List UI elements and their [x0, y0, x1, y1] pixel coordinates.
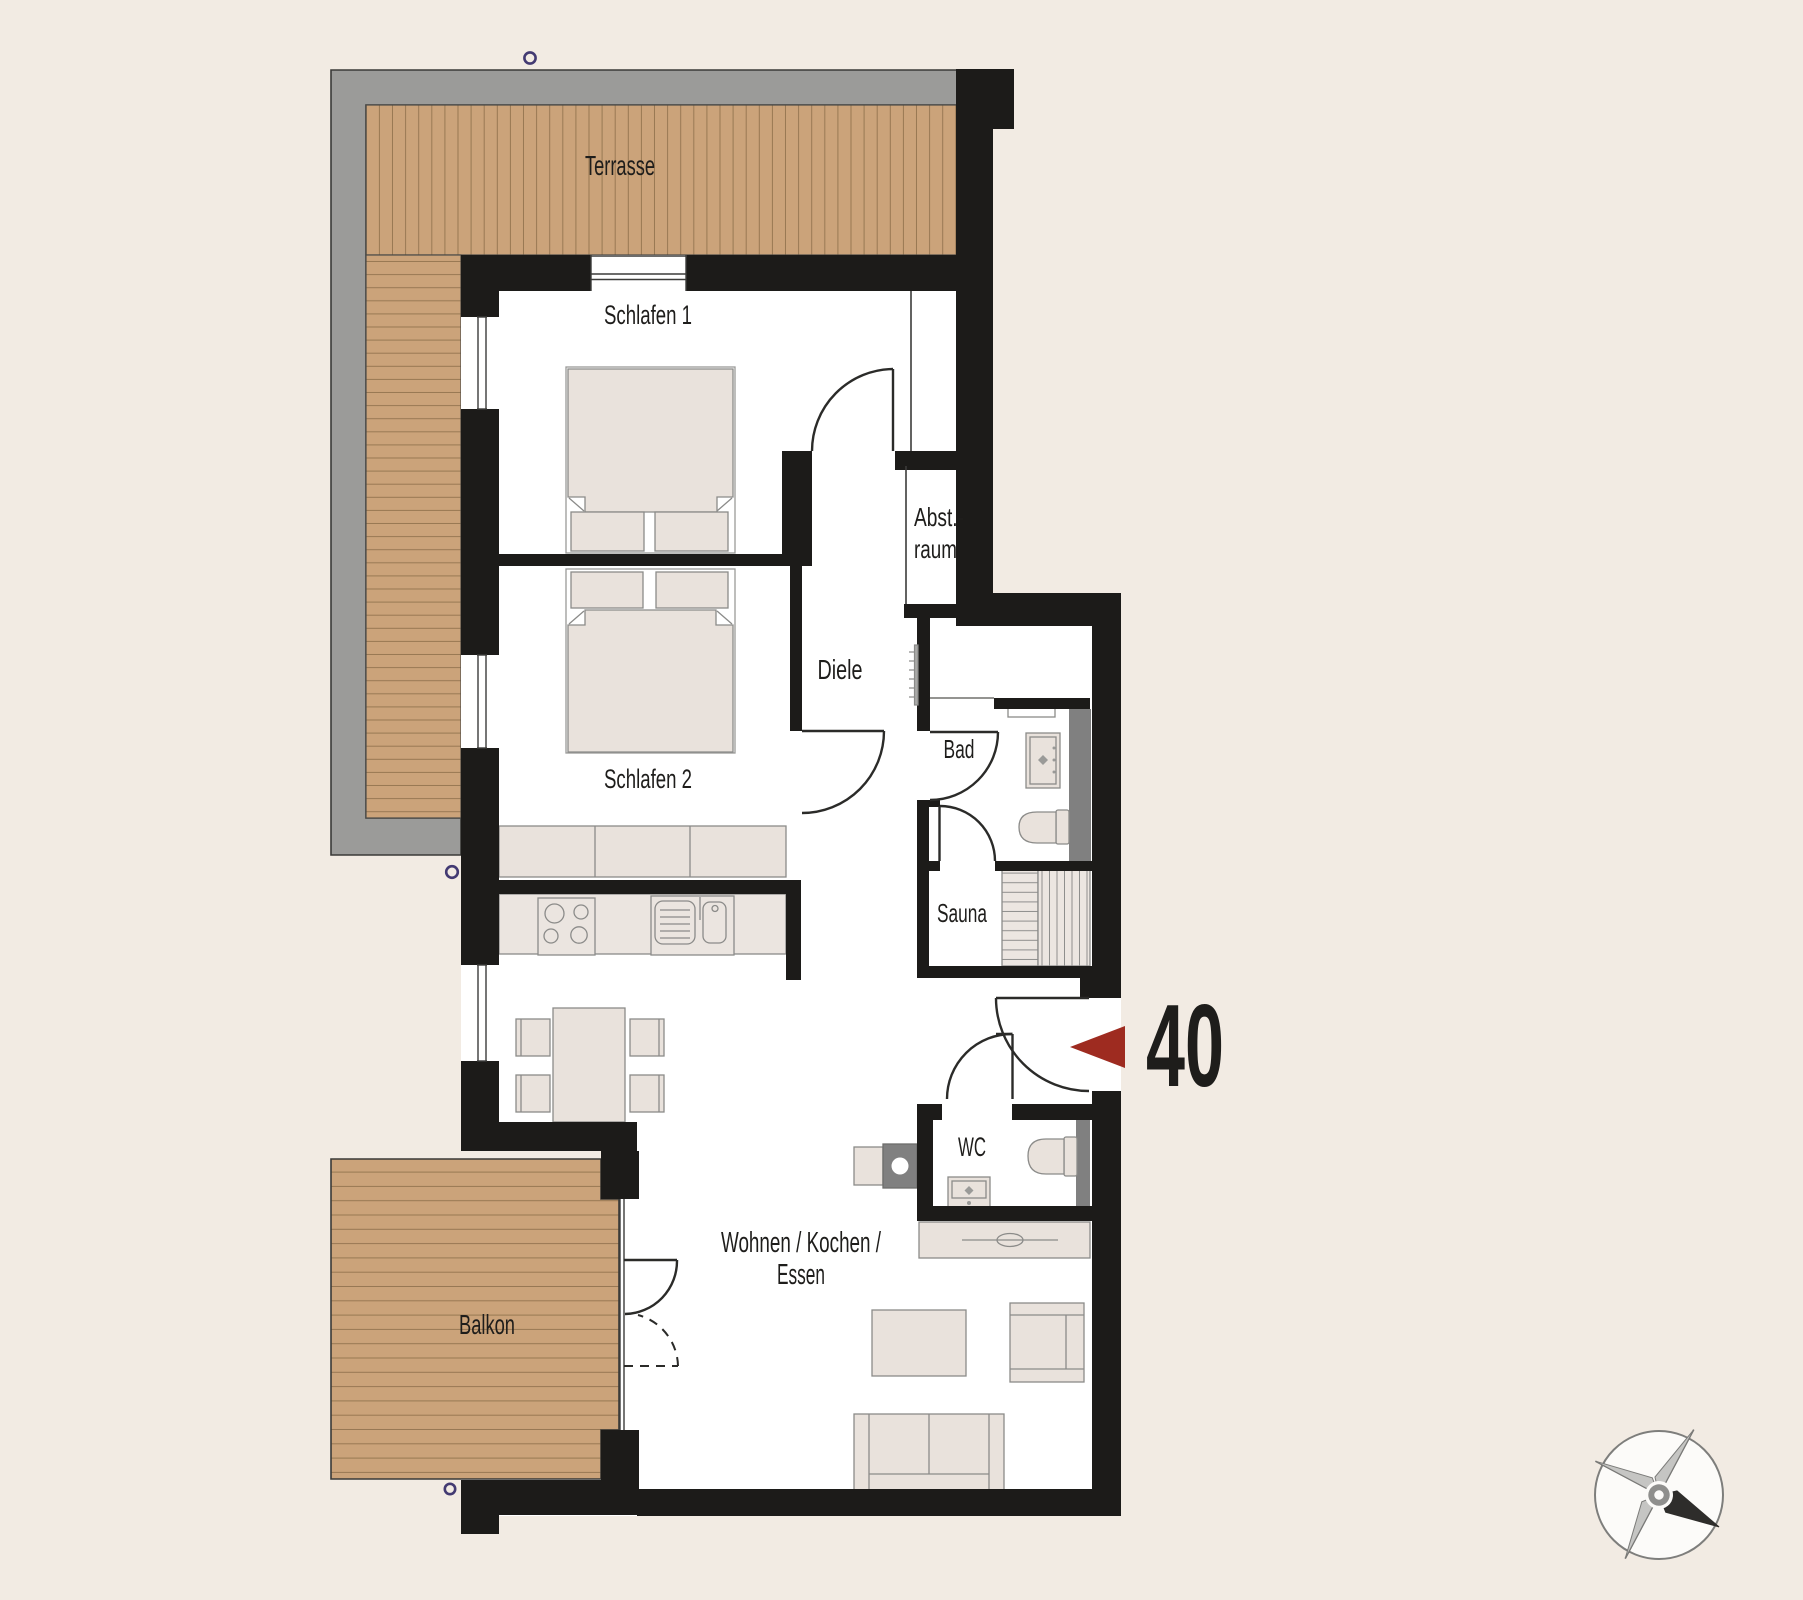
- svg-text:Essen: Essen: [777, 1259, 825, 1291]
- svg-text:Sauna: Sauna: [937, 898, 987, 928]
- svg-text:Schlafen 2: Schlafen 2: [604, 764, 692, 794]
- svg-text:Wohnen / Kochen /: Wohnen / Kochen /: [721, 1227, 882, 1259]
- svg-text:raum: raum: [914, 534, 957, 564]
- svg-text:Schlafen 1: Schlafen 1: [604, 300, 692, 330]
- svg-text:WC: WC: [958, 1132, 986, 1162]
- svg-text:Diele: Diele: [818, 654, 863, 685]
- svg-text:Bad: Bad: [944, 734, 975, 764]
- svg-text:40: 40: [1146, 980, 1224, 1111]
- svg-text:Balkon: Balkon: [459, 1309, 515, 1340]
- svg-text:Terrasse: Terrasse: [585, 150, 655, 181]
- svg-text:Abst.-: Abst.-: [914, 502, 964, 532]
